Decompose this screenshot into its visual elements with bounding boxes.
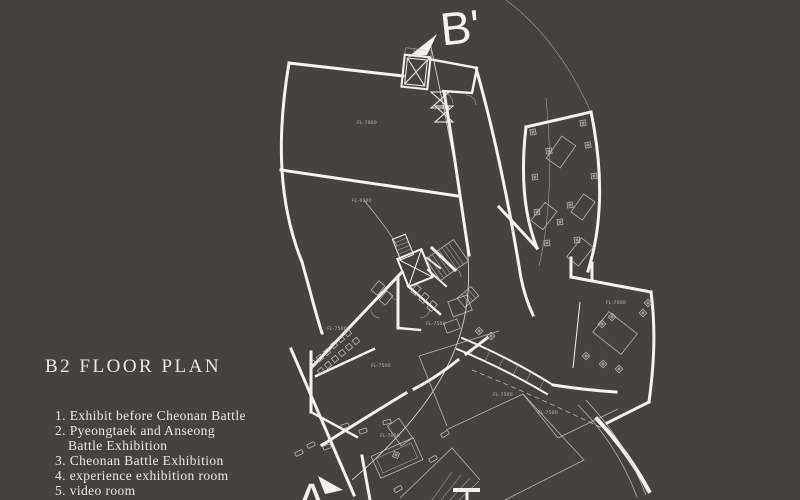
interior-lines [364,200,646,500]
legend-item-2: 2. Pyeongtaek and Anseong [55,423,246,438]
legend-item-4: 4. experience exhibition room [55,468,246,483]
floor-level-label: FL-7500 [371,363,391,369]
legend-item-3: 3. Cheonan Battle Exhibition [55,453,246,468]
floor-level-label: FL-7500 [327,326,347,332]
floor-level-label: FL-7000 [380,433,400,439]
legend-item-5: 5. video room [55,483,246,498]
elevator-core-icon [397,249,432,287]
legend-item-2-continued: Battle Exhibition [55,438,246,453]
legend-item-1: 1. Exhibit before Cheonan Battle [55,408,246,423]
floor-level-label: FL-7000 [606,300,626,306]
floor-level-label: FL-7000 [357,120,377,126]
legend: 1. Exhibit before Cheonan Battle 2. Pyeo… [55,408,246,498]
floor-level-label: FL-7500 [426,321,446,327]
floor-level-label: FL-7500 [538,410,558,416]
section-marker-b: B' [438,0,483,55]
floor-level-label: FL-7500 [493,392,513,398]
floor-level-label: FL-6500 [352,198,372,204]
page-title: B2 FLOOR PLAN [45,356,221,378]
walls [281,59,654,500]
section-marker-a: A [296,474,327,500]
